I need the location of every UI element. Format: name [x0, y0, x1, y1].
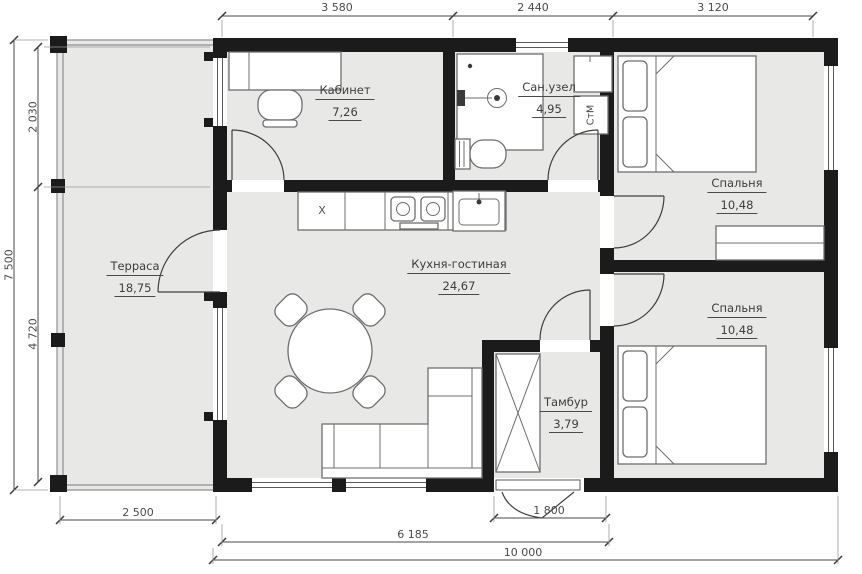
room-area: 7,26 — [328, 107, 362, 122]
dim-top-2: 2 440 — [517, 1, 549, 14]
room-area: 24,67 — [439, 281, 480, 296]
dining-table — [288, 309, 372, 393]
room-label-bedroom-top: Спальня 10,48 — [707, 178, 766, 214]
room-label-office: Кабинет 7,26 — [315, 85, 374, 121]
dim-terrace-width: 2 500 — [122, 506, 154, 519]
terrace-door-opening — [213, 230, 227, 292]
pillow — [623, 117, 647, 167]
room-label-bathroom: Сан.узел 4,95 — [518, 82, 580, 118]
terrace-post — [50, 36, 67, 53]
room-name: Тамбур — [540, 397, 592, 412]
stove-burner — [421, 197, 445, 221]
dim-total-width: 10 000 — [504, 546, 543, 559]
room-area: 18,75 — [115, 283, 156, 298]
dining-set — [271, 290, 389, 412]
room-name: Терраса — [106, 261, 163, 276]
dim-left-total: 7 500 — [3, 249, 16, 281]
dim-top-1: 3 580 — [321, 1, 353, 14]
floor-plan-image: Терраса 18,75 Кабинет 7,26 Сан.узел 4,95… — [0, 0, 862, 574]
wall-between-bedrooms — [614, 260, 824, 272]
stove-burner — [391, 197, 415, 221]
vestibule-wardrobe — [496, 354, 540, 472]
room-label-terrace: Терраса 18,75 — [106, 261, 163, 297]
room-label-kitchen-living: Кухня-гостиная 24,67 — [407, 259, 510, 295]
desk-chair — [258, 90, 302, 120]
room-label-vestibule: Тамбур 3,79 — [540, 397, 592, 433]
pillow — [623, 61, 647, 111]
toilet-bowl — [470, 140, 506, 168]
washing-machine-label: СтМ — [586, 105, 597, 125]
room-area: 10,48 — [717, 200, 758, 215]
room-area: 4,95 — [532, 104, 566, 119]
bedroom-bottom-furniture — [618, 346, 766, 464]
wall-office-bath — [443, 38, 455, 180]
dim-left-upper: 2 030 — [27, 101, 40, 133]
kitchen-x-marker: X — [318, 204, 326, 217]
toilet-tank — [455, 139, 470, 169]
kitchen-counter — [298, 191, 506, 231]
room-name: Сан.узел — [518, 82, 580, 97]
room-area: 3,79 — [549, 419, 583, 434]
room-name: Спальня — [707, 303, 766, 318]
dim-left-lower: 4 720 — [27, 318, 40, 350]
room-area: 10,48 — [717, 325, 758, 340]
terrace-post — [51, 333, 65, 347]
room-name: Кухня-гостиная — [407, 259, 510, 274]
room-name: Кабинет — [315, 85, 374, 100]
dim-entrance-width: 1 800 — [533, 504, 565, 517]
room-name: Спальня — [707, 178, 766, 193]
pillow — [623, 407, 647, 457]
pillow — [623, 351, 647, 401]
dim-top-3: 3 120 — [697, 1, 729, 14]
terrace-post — [50, 475, 67, 492]
room-label-bedroom-bottom: Спальня 10,48 — [707, 303, 766, 339]
dim-living-width: 6 185 — [397, 528, 429, 541]
terrace-post — [51, 179, 65, 193]
